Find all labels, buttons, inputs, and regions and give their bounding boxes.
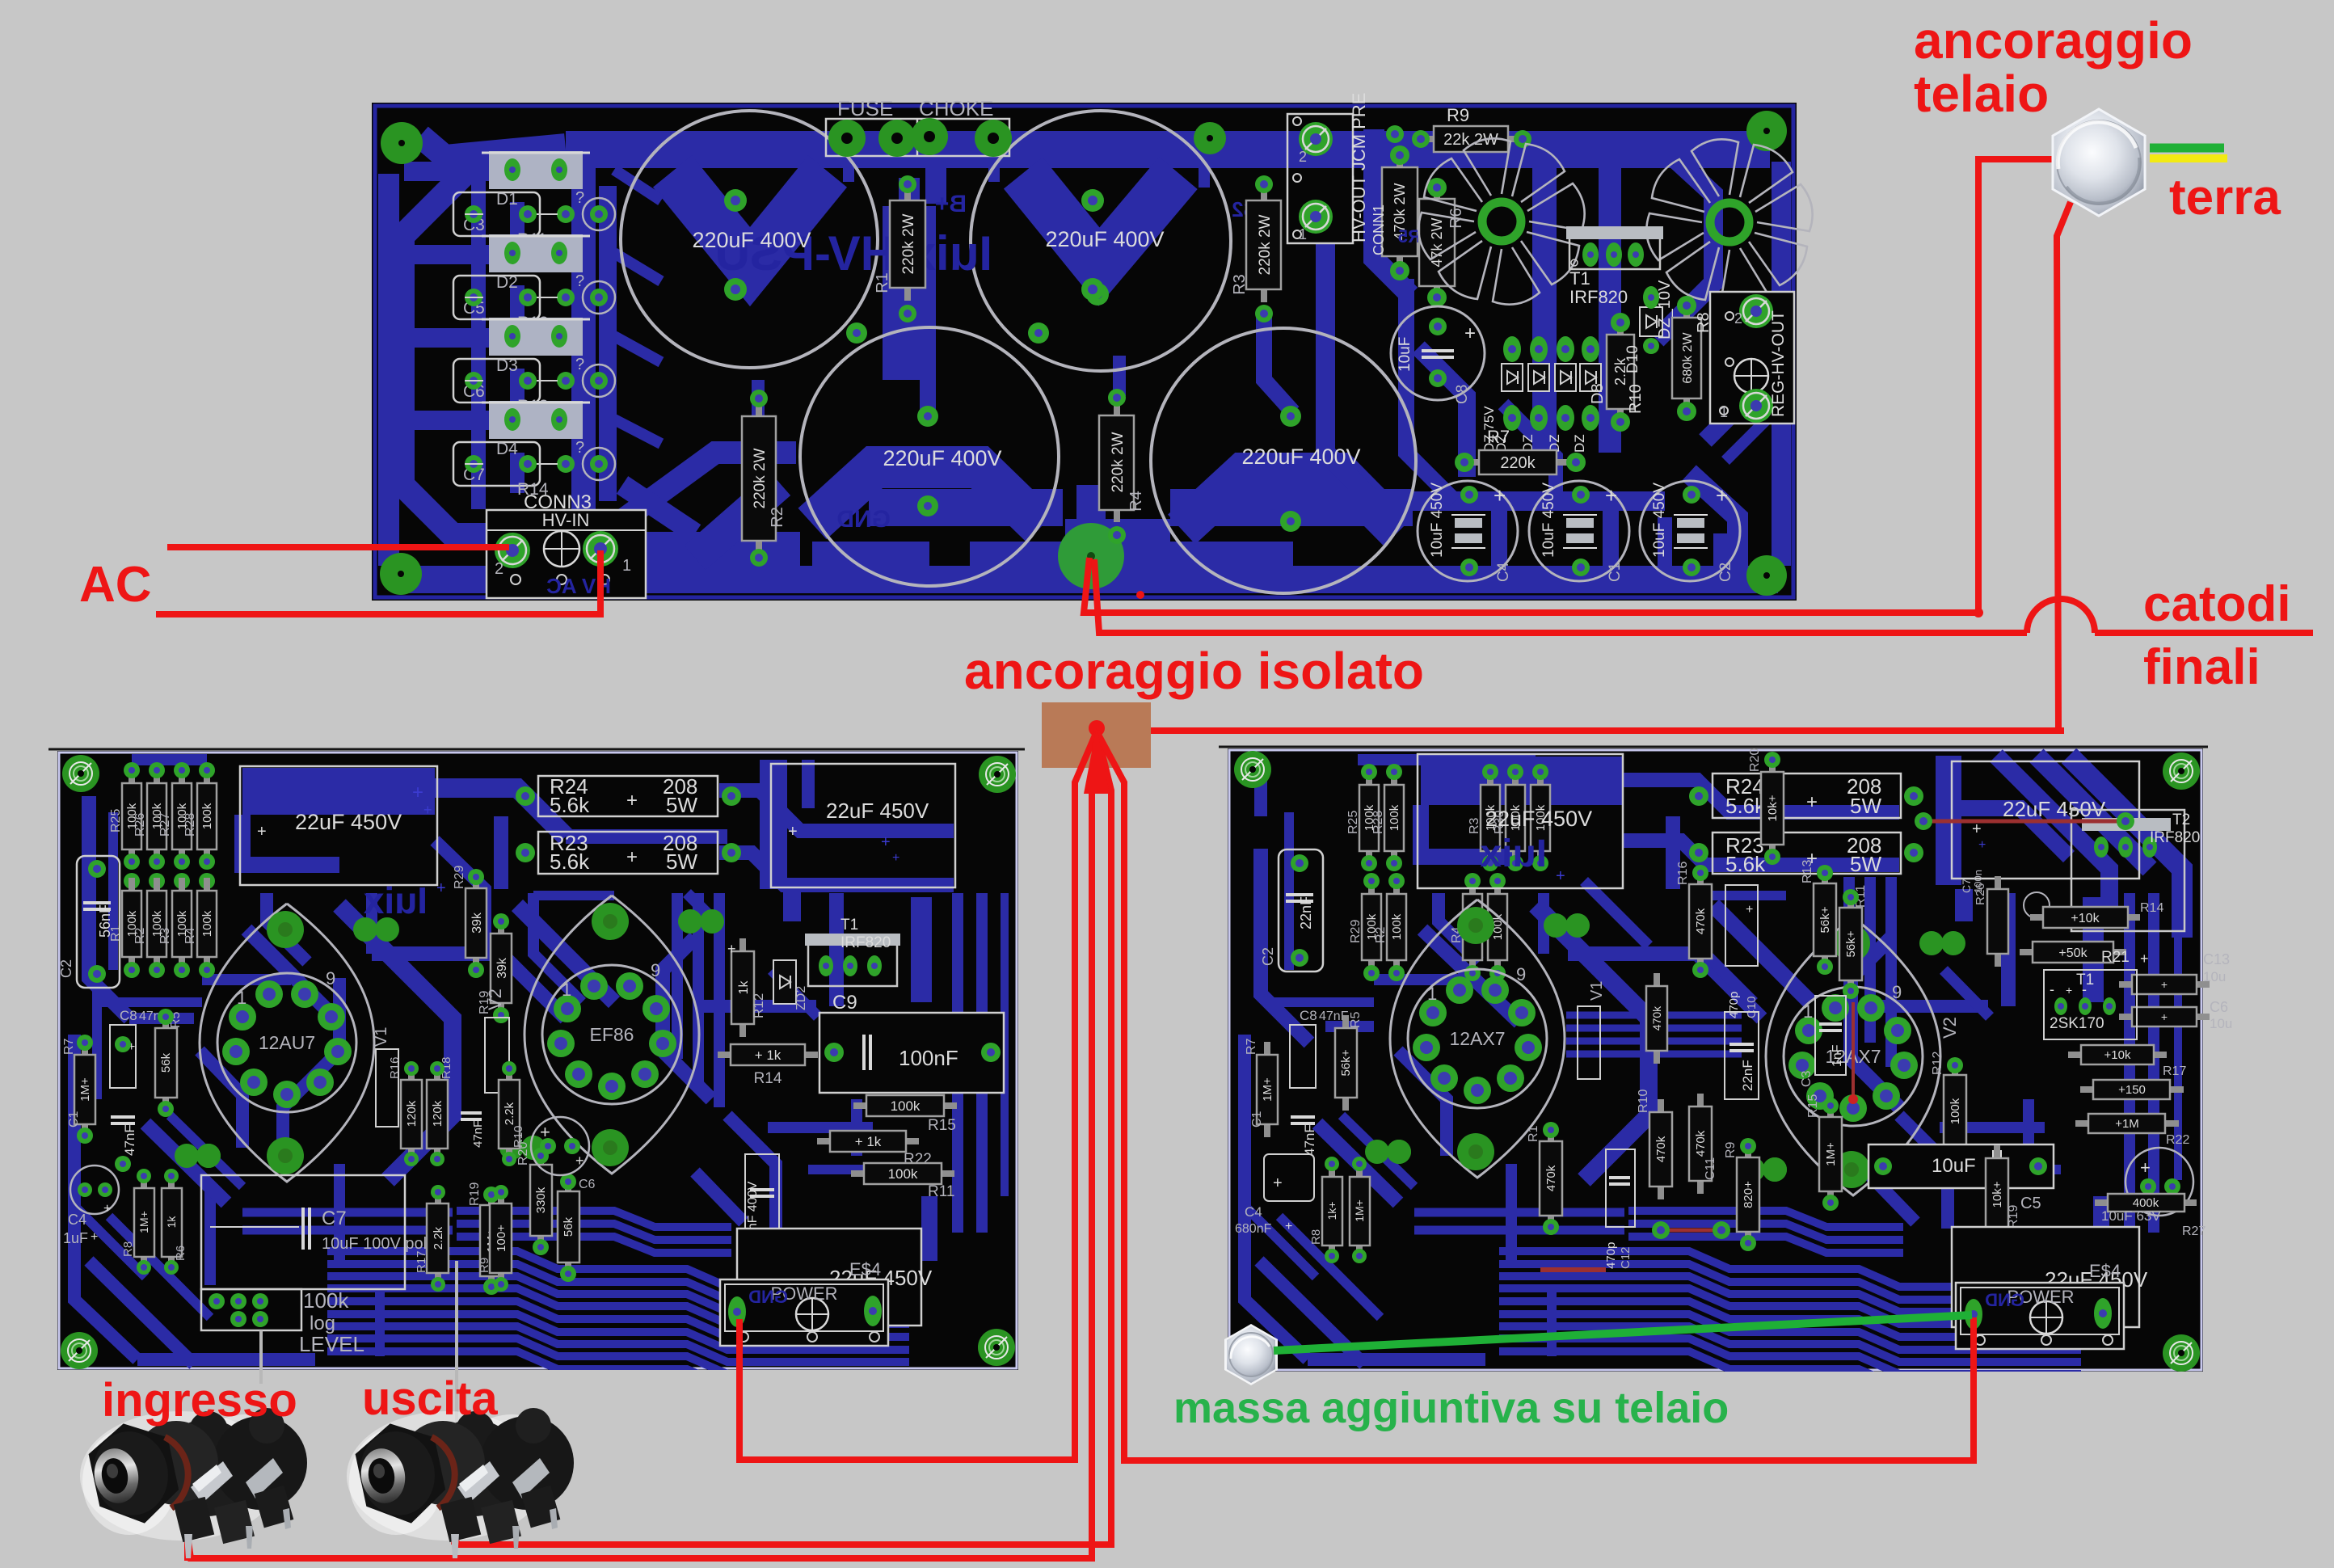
svg-text:R17: R17 [2163,1064,2186,1078]
svg-text:R4: R4 [183,927,197,944]
svg-text:AC: AC [79,557,152,613]
svg-text:1: 1 [562,980,571,1000]
svg-text:5W: 5W [1850,794,1881,818]
svg-text:R10: R10 [512,1125,525,1148]
svg-text:+: + [257,823,267,841]
svg-text:C10: C10 [1745,996,1759,1018]
svg-text:10uF 450V: 10uF 450V [1540,483,1557,558]
svg-text:C6: C6 [2210,999,2228,1015]
svg-text:R7: R7 [62,1038,76,1055]
svg-text:+: + [2140,950,2149,967]
svg-text:R16: R16 [1676,862,1690,885]
svg-text:R27: R27 [158,813,172,837]
svg-text:10uF 450V: 10uF 450V [1429,483,1446,558]
svg-text:5.6k: 5.6k [550,793,590,817]
svg-text:R22: R22 [2166,1133,2189,1147]
svg-text:56k: 56k [159,1052,173,1073]
svg-text:GND: GND [836,506,891,533]
svg-text:1: 1 [1427,984,1437,1004]
svg-text:+: + [436,879,446,897]
svg-text:C8: C8 [120,1008,137,1023]
svg-text:finali: finali [2143,639,2260,695]
svg-text:470k: 470k [1654,1136,1668,1162]
svg-text:+: + [2161,1010,2168,1023]
svg-text:HV-IN: HV-IN [542,510,590,530]
svg-text:R25: R25 [109,809,123,832]
svg-text:5.6k: 5.6k [1725,852,1766,876]
svg-text:R9: R9 [1724,1141,1738,1158]
svg-text:GND: GND [1985,1290,2024,1310]
svg-text:R8: R8 [1309,1229,1323,1245]
svg-text:1: 1 [622,557,631,575]
svg-text:DZ: DZ [1572,434,1587,453]
svg-text:1M+: 1M+ [137,1211,150,1233]
svg-text:R1: R1 [874,272,891,293]
svg-text:T1: T1 [1569,268,1590,289]
svg-text:56k+: 56k+ [1818,906,1832,933]
svg-text:+: + [1746,903,1753,917]
svg-text:R9: R9 [478,1258,491,1273]
svg-text:+: + [1273,1174,1283,1192]
svg-text:-: - [2050,981,2054,997]
svg-text:D1: D1 [496,190,518,209]
svg-text:+: + [892,851,899,865]
svg-text:1: 1 [1803,1001,1813,1022]
svg-text:22nF: 22nF [1298,896,1314,929]
svg-text:R28: R28 [183,813,197,837]
svg-text:C2: C2 [58,959,74,978]
svg-text:R26: R26 [133,813,147,837]
svg-text:IRF820: IRF820 [1569,287,1628,307]
svg-text:2.2k: 2.2k [503,1102,516,1125]
svg-text:C4: C4 [68,1212,86,1228]
svg-text:2: 2 [495,560,503,578]
svg-text:?: ? [575,356,584,373]
svg-text:+: + [727,941,736,957]
svg-text:470k: 470k [1694,908,1708,934]
svg-text:C7: C7 [1960,879,1973,893]
svg-text:1k+: 1k+ [1325,1202,1338,1220]
svg-text:470p: 470p [1604,1242,1618,1269]
svg-text:R10: R10 [1637,1090,1650,1113]
svg-text:V1: V1 [373,1027,390,1047]
svg-text:C2: C2 [1260,947,1276,966]
svg-text:100nF: 100nF [899,1046,958,1070]
svg-text:R29: R29 [453,866,466,889]
svg-text:C4: C4 [1245,1204,1262,1220]
svg-text:5.6k: 5.6k [1725,794,1766,818]
svg-text:100n: 100n [1972,870,1984,893]
svg-text:D2: D2 [496,273,518,292]
svg-text:R20: R20 [1748,748,1762,772]
svg-text:1M+: 1M+ [1824,1142,1838,1166]
svg-text:22uF 450V: 22uF 450V [295,810,402,834]
svg-text:R7: R7 [1487,427,1510,447]
svg-text:CHOKE: CHOKE [919,96,993,120]
svg-text:5.6k: 5.6k [550,849,590,874]
svg-text:680nF: 680nF [1235,1222,1272,1236]
svg-text:220k 2W: 220k 2W [752,448,769,508]
svg-text:39k: 39k [470,912,484,934]
svg-text:+: + [1494,483,1506,508]
svg-text:C4: C4 [1495,562,1512,582]
svg-text:470p: 470p [1727,992,1741,1018]
svg-text:+150: +150 [2118,1083,2146,1097]
svg-text:1: 1 [237,988,246,1008]
svg-text:1: 1 [1299,226,1307,242]
svg-text:T1: T1 [840,917,858,934]
svg-text:470k: 470k [1544,1165,1558,1191]
svg-text:C3: C3 [1800,1070,1814,1087]
svg-text:REG-HV-OUT: REG-HV-OUT [1769,310,1788,417]
svg-text:terra: terra [2169,170,2281,226]
svg-text:+: + [423,802,432,818]
svg-text:10u: 10u [2210,1016,2232,1031]
svg-text:R12: R12 [751,993,766,1018]
svg-text:+: + [626,846,638,868]
svg-text:R1: R1 [1527,1125,1540,1142]
svg-text:R2: R2 [1374,926,1388,943]
svg-text:+: + [1978,838,1986,852]
svg-text:C5: C5 [2020,1195,2041,1212]
svg-text:+: + [103,1202,111,1216]
svg-text:220uF 400V: 220uF 400V [1241,445,1360,469]
svg-text:log: log [310,1313,335,1334]
svg-text:+: + [1806,791,1818,813]
svg-text:D3: D3 [496,356,518,375]
svg-text:220k 2W: 220k 2W [900,213,917,274]
svg-text:1M+: 1M+ [78,1077,92,1102]
svg-text:Iuix: Iuix [1480,832,1547,875]
svg-text:100k: 100k [888,1166,918,1182]
svg-text:R19: R19 [2007,1205,2020,1229]
svg-text:220uF 400V: 220uF 400V [883,446,1001,470]
svg-text:2: 2 [1734,310,1742,327]
svg-text:ancoraggio isolato: ancoraggio isolato [964,642,1424,700]
svg-text:C11: C11 [1704,1157,1717,1180]
svg-text:+ 1k: + 1k [855,1134,882,1149]
svg-text:+: + [881,833,891,851]
svg-text:R15: R15 [928,1117,956,1134]
svg-text:E$4: E$4 [2089,1261,2121,1281]
svg-text:V2: V2 [485,988,505,1010]
svg-text:?: ? [575,272,584,290]
svg-text:V2: V2 [1940,1017,1960,1039]
svg-text:10uF 450V: 10uF 450V [1651,483,1668,558]
svg-text:R3: R3 [1468,817,1481,834]
svg-text:100+: 100+ [495,1224,508,1252]
svg-text:+: + [412,782,423,803]
svg-text:10k+: 10k+ [1766,795,1780,821]
svg-text:2.2k: 2.2k [432,1226,445,1250]
svg-text:+: + [2066,984,2072,997]
svg-text:R5: R5 [1349,1011,1363,1028]
svg-text:9: 9 [326,968,335,988]
svg-text:DZ_10V: DZ_10V [1656,280,1674,339]
svg-text:EF86: EF86 [590,1024,634,1045]
svg-text:R9: R9 [1447,105,1469,125]
svg-text:56k: 56k [562,1216,575,1237]
svg-text:ingresso: ingresso [102,1374,297,1427]
svg-text:9: 9 [1516,964,1526,984]
svg-text:R8: R8 [121,1241,135,1257]
svg-text:B+: B+ [935,191,967,217]
svg-text:22nF: 22nF [1740,1060,1755,1091]
svg-text:+: + [1716,483,1728,508]
svg-text:2: 2 [1299,149,1307,165]
svg-text:?: ? [575,439,584,457]
svg-text:R17: R17 [415,1250,428,1273]
svg-text:10uF: 10uF [1932,1155,1976,1177]
svg-text:220uF 400V: 220uF 400V [1045,227,1164,251]
svg-text:C13: C13 [2203,951,2230,967]
svg-text:C2: C2 [1717,563,1734,582]
svg-text:FUSE: FUSE [837,96,893,120]
svg-text:56k+: 56k+ [1339,1049,1353,1076]
svg-text:LEVEL: LEVEL [299,1332,364,1356]
svg-text:+10k: +10k [2104,1048,2131,1062]
svg-text:C9: C9 [832,992,857,1014]
svg-text:120k: 120k [405,1100,419,1127]
svg-text:ancoraggio: ancoraggio [1914,11,2193,70]
svg-text:1uF: 1uF [63,1230,88,1246]
svg-text:10u: 10u [2203,969,2226,984]
svg-text:820+: 820+ [1742,1181,1755,1208]
svg-text:IRF820: IRF820 [840,934,891,951]
svg-text:C1: C1 [1250,1111,1264,1128]
svg-text:10k+: 10k+ [1991,1181,2004,1208]
svg-text:D10: D10 [1624,345,1641,373]
svg-text:47nF: 47nF [1302,1124,1317,1156]
svg-text:1k: 1k [165,1216,178,1229]
svg-text:1M+: 1M+ [1353,1199,1366,1222]
svg-text:22uF 450V: 22uF 450V [1485,807,1592,831]
svg-text:+: + [91,1230,98,1244]
svg-text:1nF: 1nF [1831,1044,1844,1067]
svg-text:V1: V1 [1588,981,1606,1001]
svg-text:C6: C6 [579,1178,596,1191]
svg-text:220k 2W: 220k 2W [1257,214,1274,275]
svg-text:10uF 100V poly: 10uF 100V poly [322,1235,435,1253]
svg-text:+: + [1556,867,1565,885]
svg-text:R6: R6 [174,1246,187,1261]
svg-text:CONN1: CONN1 [1371,204,1387,255]
svg-text:1M+: 1M+ [1261,1077,1274,1102]
svg-text:680k 2W: 680k 2W [1681,332,1695,384]
svg-text:R16: R16 [388,1056,402,1079]
svg-text:+: + [788,823,798,841]
svg-text:R25: R25 [1346,811,1360,834]
svg-text:C7: C7 [322,1208,347,1229]
svg-text:?: ? [575,189,584,207]
svg-text:+10k: +10k [2071,912,2100,925]
svg-text:-: - [2082,981,2087,997]
svg-text:E$4: E$4 [849,1259,881,1279]
svg-text:100k: 100k [891,1098,921,1114]
svg-text:IRF820: IRF820 [2150,829,2200,846]
svg-text:R11: R11 [928,1183,954,1200]
svg-text:100k: 100k [200,803,214,829]
svg-text:R10: R10 [1627,384,1645,414]
svg-text:ZD2: ZD2 [794,986,808,1010]
svg-text:GND: GND [748,1287,788,1307]
svg-text:5W: 5W [666,849,697,874]
svg-text:470k: 470k [1650,1005,1663,1031]
svg-text:+: + [2140,1157,2151,1178]
svg-text:R12: R12 [1931,1052,1944,1075]
svg-text:R14: R14 [2140,901,2163,915]
svg-text:5W: 5W [666,793,697,817]
svg-text:R3: R3 [1231,274,1249,295]
svg-text:R14: R14 [754,1070,782,1087]
svg-text:R27: R27 [2182,1224,2206,1238]
svg-text:R2: R2 [133,927,147,944]
svg-text:100k: 100k [200,910,214,937]
svg-text:R21: R21 [2101,949,2130,966]
svg-text:56nF: 56nF [97,904,113,938]
svg-text:+ 1k: + 1k [755,1047,782,1063]
svg-text:R3: R3 [158,927,172,944]
svg-text:telaio: telaio [1914,65,2049,123]
svg-text:+: + [1464,322,1476,344]
svg-text:+: + [2161,978,2168,991]
svg-text:catodi: catodi [2143,576,2291,632]
svg-text:R13: R13 [1801,860,1814,883]
svg-text:9: 9 [651,960,660,980]
svg-text:massa aggiuntiva su telaio: massa aggiuntiva su telaio [1173,1384,1729,1432]
svg-text:220k 2W: 220k 2W [1110,432,1127,492]
svg-text:330k: 330k [534,1187,548,1213]
svg-text:R2: R2 [769,507,786,528]
svg-text:220k: 220k [1500,454,1536,472]
svg-text:12AX7: 12AX7 [1449,1028,1505,1049]
svg-text:100k: 100k [1390,913,1404,940]
svg-text:R19: R19 [468,1182,482,1206]
svg-text:56k+: 56k+ [1844,930,1858,957]
svg-text:C1: C1 [67,1111,81,1128]
svg-text:+50k: +50k [2058,946,2088,960]
svg-text:10uF 63V: 10uF 63V [2101,1208,2161,1224]
svg-text:5W: 5W [1850,852,1881,876]
svg-text:uscita: uscita [362,1372,498,1425]
svg-text:R4: R4 [1127,491,1145,512]
svg-text:C1: C1 [1607,563,1624,582]
svg-text:+: + [575,1153,584,1169]
svg-text:C12: C12 [1619,1246,1633,1269]
svg-text:2SK170: 2SK170 [2050,1015,2104,1032]
svg-text:100k: 100k [303,1288,349,1313]
svg-text:+: + [1605,483,1617,508]
svg-text:9: 9 [1892,982,1902,1002]
svg-text:39k: 39k [495,957,509,979]
svg-text:C8: C8 [1454,385,1471,404]
svg-text:+: + [626,790,638,811]
svg-text:100k: 100k [1949,1098,1962,1124]
svg-text:R29: R29 [1349,920,1363,943]
svg-text:R7: R7 [1245,1038,1258,1055]
svg-text:1k: 1k [737,980,751,995]
svg-text:HV-OUT JCM PRE: HV-OUT JCM PRE [1349,93,1369,242]
svg-text:+1M: +1M [2115,1117,2139,1131]
svg-text:470k: 470k [1694,1130,1708,1157]
svg-text:R15: R15 [1806,1094,1820,1118]
svg-text:D4: D4 [496,440,518,458]
svg-text:12AU7: 12AU7 [259,1032,315,1053]
svg-text:Iuix: Iuix [363,879,428,921]
svg-text:T2: T2 [2172,811,2190,828]
svg-text:R28: R28 [1371,811,1385,834]
svg-text:1: 1 [1720,404,1728,420]
svg-text:47nF: 47nF [122,1124,137,1156]
svg-text:120k: 120k [431,1100,444,1127]
svg-text:220uF 400V: 220uF 400V [692,228,811,252]
svg-text:47nF: 47nF [471,1120,485,1148]
svg-text:100k: 100k [1388,804,1401,831]
svg-text:D8: D8 [1589,383,1607,404]
svg-text:C8: C8 [1300,1008,1317,1023]
svg-text:10uF: 10uF [1397,337,1413,372]
svg-text:+: + [1285,1220,1292,1233]
svg-text:22uF 450V: 22uF 450V [826,799,929,823]
svg-text:R5: R5 [1398,226,1421,247]
